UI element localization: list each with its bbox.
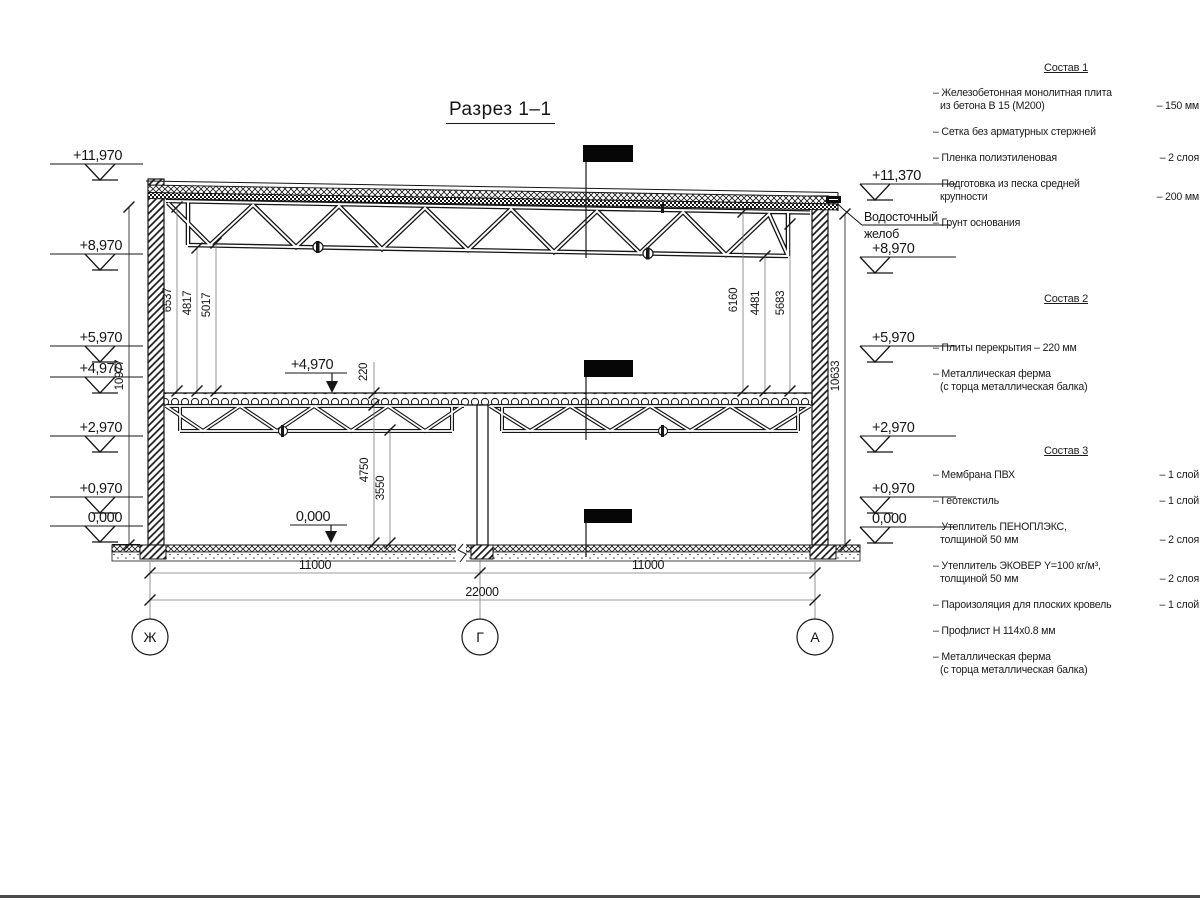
spec-item-text: (с торца металлическая балка) bbox=[933, 664, 1087, 677]
dim-label: 10977 bbox=[114, 360, 126, 390]
dim-label: 11000 bbox=[299, 558, 332, 572]
spec-item: – Утеплитель ПЕНОПЛЭКС,толщиной 50 мм – … bbox=[933, 521, 1199, 547]
dim-label: 6160 bbox=[728, 288, 740, 312]
mid-truss-right bbox=[490, 406, 810, 437]
spec-item-text: – Металлическая ферма bbox=[933, 368, 1087, 381]
drawing-sheet: +11,970 +8,970 +5,970 +4,970 +2,970 +0,9… bbox=[0, 0, 1200, 900]
dim-label: 220 bbox=[358, 363, 370, 381]
axis-bubbles: Ж Г А bbox=[132, 619, 833, 655]
spec-item-text: крупности bbox=[933, 191, 1080, 204]
spec-item-value: – 150 мм bbox=[1157, 100, 1199, 113]
spec-item-value: – 1 слой bbox=[1160, 495, 1199, 508]
spec-item-text: из бетона В 15 (М200) bbox=[933, 100, 1112, 113]
axis-label: А bbox=[810, 629, 820, 645]
elevation-label: +8,970 bbox=[872, 241, 915, 257]
elevation-label: +2,970 bbox=[80, 420, 123, 436]
elevation-label: +4,970 bbox=[291, 357, 334, 373]
spec-item-text: – Сетка без арматурных стержней bbox=[933, 126, 1096, 139]
gutter-note-label: Водосточный bbox=[864, 210, 938, 224]
elevation-label: 0,000 bbox=[872, 511, 907, 527]
roof-truss bbox=[166, 201, 810, 260]
left-wall bbox=[148, 179, 164, 545]
elevation-label: +2,970 bbox=[872, 420, 915, 436]
elevation-label: +0,970 bbox=[80, 481, 123, 497]
spec-item-text: толщиной 50 мм bbox=[933, 534, 1067, 547]
ground-floor-slab bbox=[112, 544, 860, 562]
spec-item-text: – Утеплитель ЭКОВЕР Y=100 кг/м³, bbox=[933, 560, 1101, 573]
spec-item: – Сетка без арматурных стержней bbox=[933, 126, 1199, 139]
spec-item: – Пленка полиэтиленовая – 2 слоя bbox=[933, 152, 1199, 165]
spec-item: – Геотекстиль – 1 слой bbox=[933, 495, 1199, 508]
foundation-right bbox=[810, 545, 836, 559]
spec-item: – Пароизоляция для плоских кровель – 1 с… bbox=[933, 599, 1199, 612]
right-wall bbox=[812, 196, 828, 545]
spec-item-value: – 1 слой bbox=[1160, 469, 1199, 482]
spec-item: – Профлист Н 114х0.8 мм bbox=[933, 625, 1199, 638]
spec-item-text: толщиной 50 мм bbox=[933, 573, 1101, 586]
gutter-note-label: желоб bbox=[864, 227, 899, 241]
page-bottom-border bbox=[0, 895, 1200, 898]
spec-section-title: Состав 1 bbox=[933, 62, 1199, 75]
spec-item: – Подготовка из песка среднейкрупности –… bbox=[933, 178, 1199, 204]
spec-item-text: – Пленка полиэтиленовая bbox=[933, 152, 1057, 165]
dim-label: 5683 bbox=[775, 291, 787, 315]
mid-zero-mark: 0,000 bbox=[290, 509, 347, 543]
spec-item: – Металлическая ферма(с торца металличес… bbox=[933, 651, 1199, 677]
mid-floor-slab bbox=[164, 393, 812, 405]
drawing-title: Разрез 1–1 bbox=[446, 99, 555, 124]
axis-label: Г bbox=[476, 629, 484, 645]
spec-item-value: – 2 слоя bbox=[1160, 152, 1199, 165]
spec-item-text: – Пароизоляция для плоских кровель bbox=[933, 599, 1111, 612]
elevation-label: +11,970 bbox=[73, 148, 122, 164]
spec-section-2: Состав 2 – Плиты перекрытия – 220 мм – М… bbox=[933, 293, 1199, 407]
dim-label: 4481 bbox=[750, 291, 762, 315]
foundation-center bbox=[471, 545, 493, 559]
center-column bbox=[477, 405, 488, 545]
spec-section-1: Состав 1 – Железобетонная монолитная пли… bbox=[933, 62, 1199, 243]
axis-label: Ж bbox=[144, 629, 157, 645]
spec-section-title: Состав 3 bbox=[933, 445, 1199, 458]
dim-label: 11000 bbox=[632, 558, 665, 572]
spec-item: – Мембрана ПВХ – 1 слой bbox=[933, 469, 1199, 482]
spec-item: – Утеплитель ЭКОВЕР Y=100 кг/м³,толщиной… bbox=[933, 560, 1199, 586]
redaction-marker-3 bbox=[584, 509, 632, 523]
elevation-label: +5,970 bbox=[80, 330, 123, 346]
spec-item-text: – Металлическая ферма bbox=[933, 651, 1087, 664]
spec-item: – Плиты перекрытия – 220 мм bbox=[933, 342, 1199, 355]
spec-item-text: – Мембрана ПВХ bbox=[933, 469, 1015, 482]
mid-truss-left bbox=[166, 406, 464, 437]
gutter bbox=[826, 196, 841, 203]
spec-section-3: Состав 3 – Мембрана ПВХ – 1 слой – Геоте… bbox=[933, 445, 1199, 690]
spec-item-text: – Утеплитель ПЕНОПЛЭКС, bbox=[933, 521, 1067, 534]
spec-item-text: (с торца металлическая балка) bbox=[933, 381, 1087, 394]
spec-item: – Металлическая ферма(с торца металличес… bbox=[933, 368, 1199, 394]
spec-item-text: – Железобетонная монолитная плита bbox=[933, 87, 1112, 100]
elevation-label: 0,000 bbox=[88, 510, 123, 526]
elevation-label: 0,000 bbox=[296, 509, 331, 525]
dim-label: 4750 bbox=[359, 458, 371, 482]
redaction-marker-1 bbox=[583, 145, 633, 162]
spec-item-value: – 200 мм bbox=[1157, 191, 1199, 204]
elevation-label: +11,370 bbox=[872, 168, 921, 184]
spec-section-title: Состав 2 bbox=[933, 293, 1199, 306]
spec-item-value: – 1 слой bbox=[1160, 599, 1199, 612]
elevation-label: +8,970 bbox=[80, 238, 123, 254]
spec-item-value: – 2 слоя bbox=[1160, 534, 1199, 547]
spec-item: – Железобетонная монолитная плитаиз бето… bbox=[933, 87, 1199, 113]
elevation-label: +5,970 bbox=[872, 330, 915, 346]
dim-label: 22000 bbox=[465, 585, 499, 599]
spec-item-text: – Грунт основания bbox=[933, 217, 1020, 230]
dim-label: 4817 bbox=[182, 291, 194, 315]
spec-item-text: – Плиты перекрытия – 220 мм bbox=[933, 342, 1077, 355]
spec-item-value: – 2 слоя bbox=[1160, 573, 1199, 586]
dim-label: 5017 bbox=[201, 293, 213, 317]
spec-item: – Грунт основания bbox=[933, 217, 1199, 230]
spec-item-text: – Геотекстиль bbox=[933, 495, 999, 508]
mid-floor-mark: +4,970 bbox=[285, 357, 347, 393]
redaction-marker-2 bbox=[584, 360, 633, 377]
spec-item-text: – Профлист Н 114х0.8 мм bbox=[933, 625, 1055, 638]
foundation-left bbox=[140, 545, 166, 559]
dim-label: 6537 bbox=[162, 288, 174, 312]
spec-item-text: – Подготовка из песка средней bbox=[933, 178, 1080, 191]
dim-label: 10633 bbox=[830, 361, 842, 391]
elevation-label: +0,970 bbox=[872, 481, 915, 497]
dim-label: 3550 bbox=[375, 476, 387, 500]
